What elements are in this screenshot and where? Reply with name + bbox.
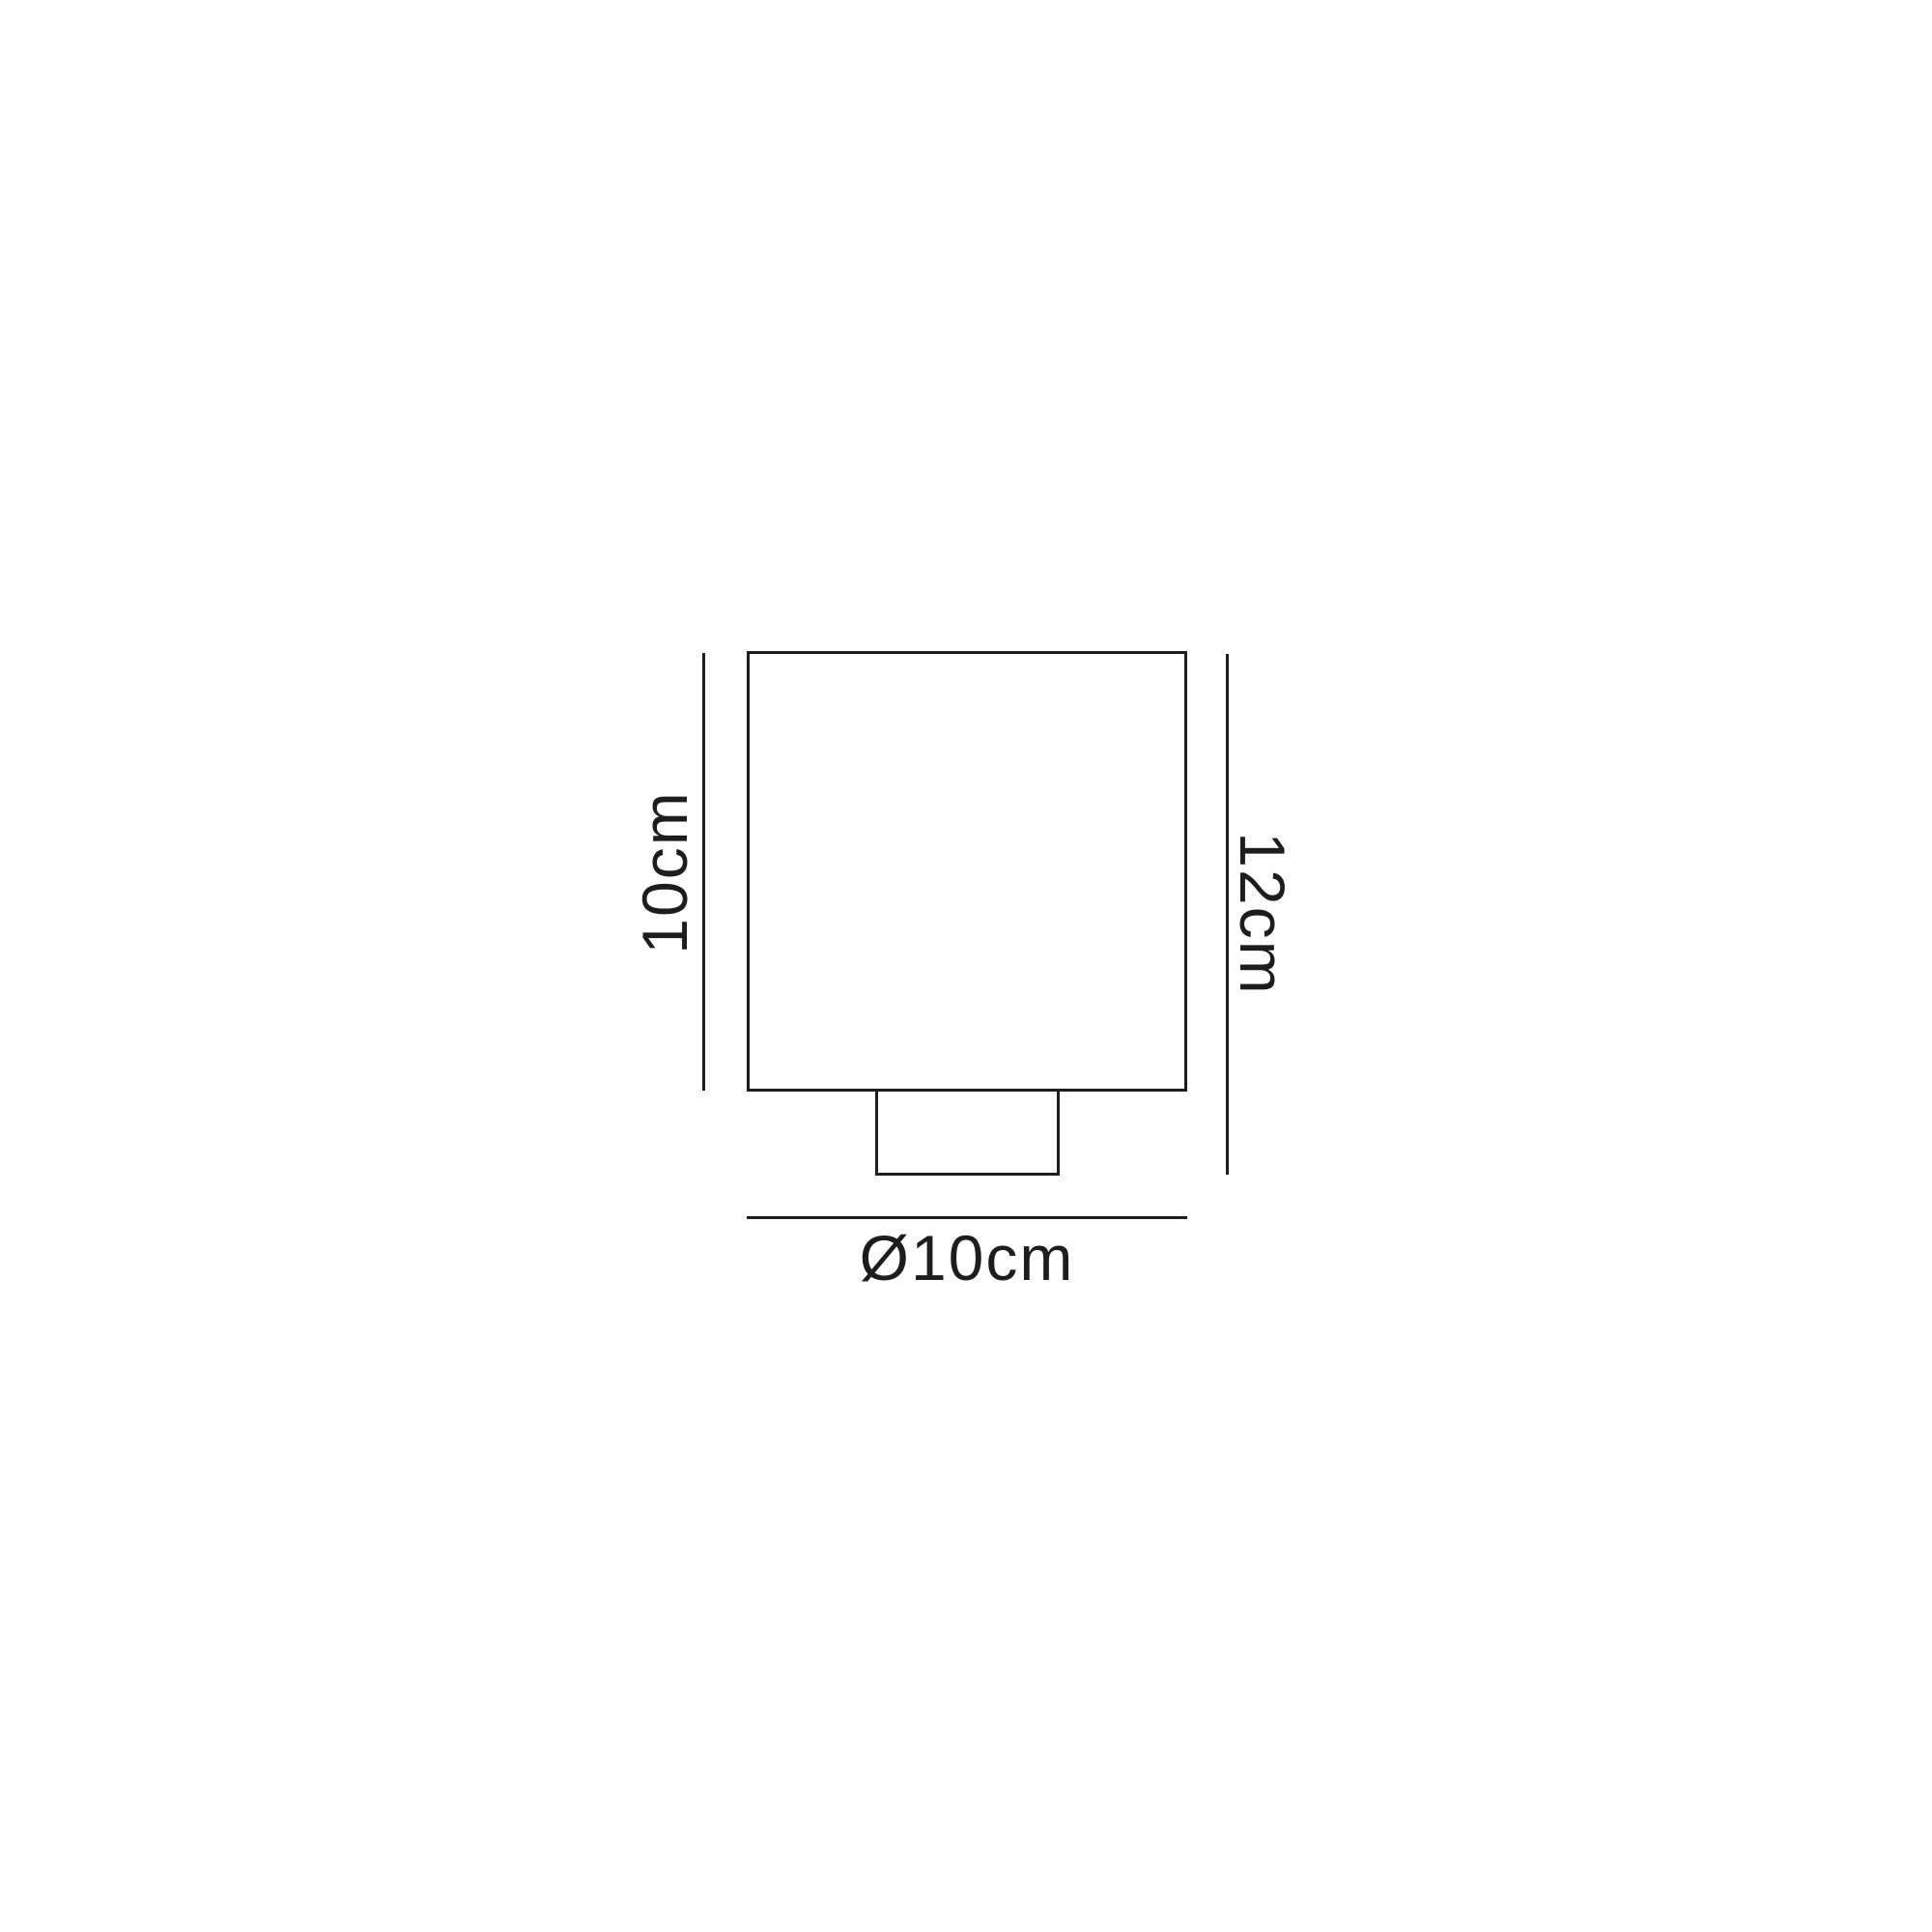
- dimension-diagram: 10cm 12cm Ø10cm: [0, 0, 1932, 1932]
- lamp-shade-outline: [747, 651, 1187, 1092]
- bottom-width-dimension-line: [747, 1216, 1187, 1219]
- left-height-dimension-label: 10cm: [633, 790, 696, 953]
- left-height-dimension-line: [702, 653, 705, 1091]
- lamp-base-outline: [875, 1089, 1060, 1176]
- bottom-diameter-dimension-label: Ø10cm: [860, 1226, 1075, 1290]
- right-height-dimension-label: 12cm: [1231, 832, 1294, 995]
